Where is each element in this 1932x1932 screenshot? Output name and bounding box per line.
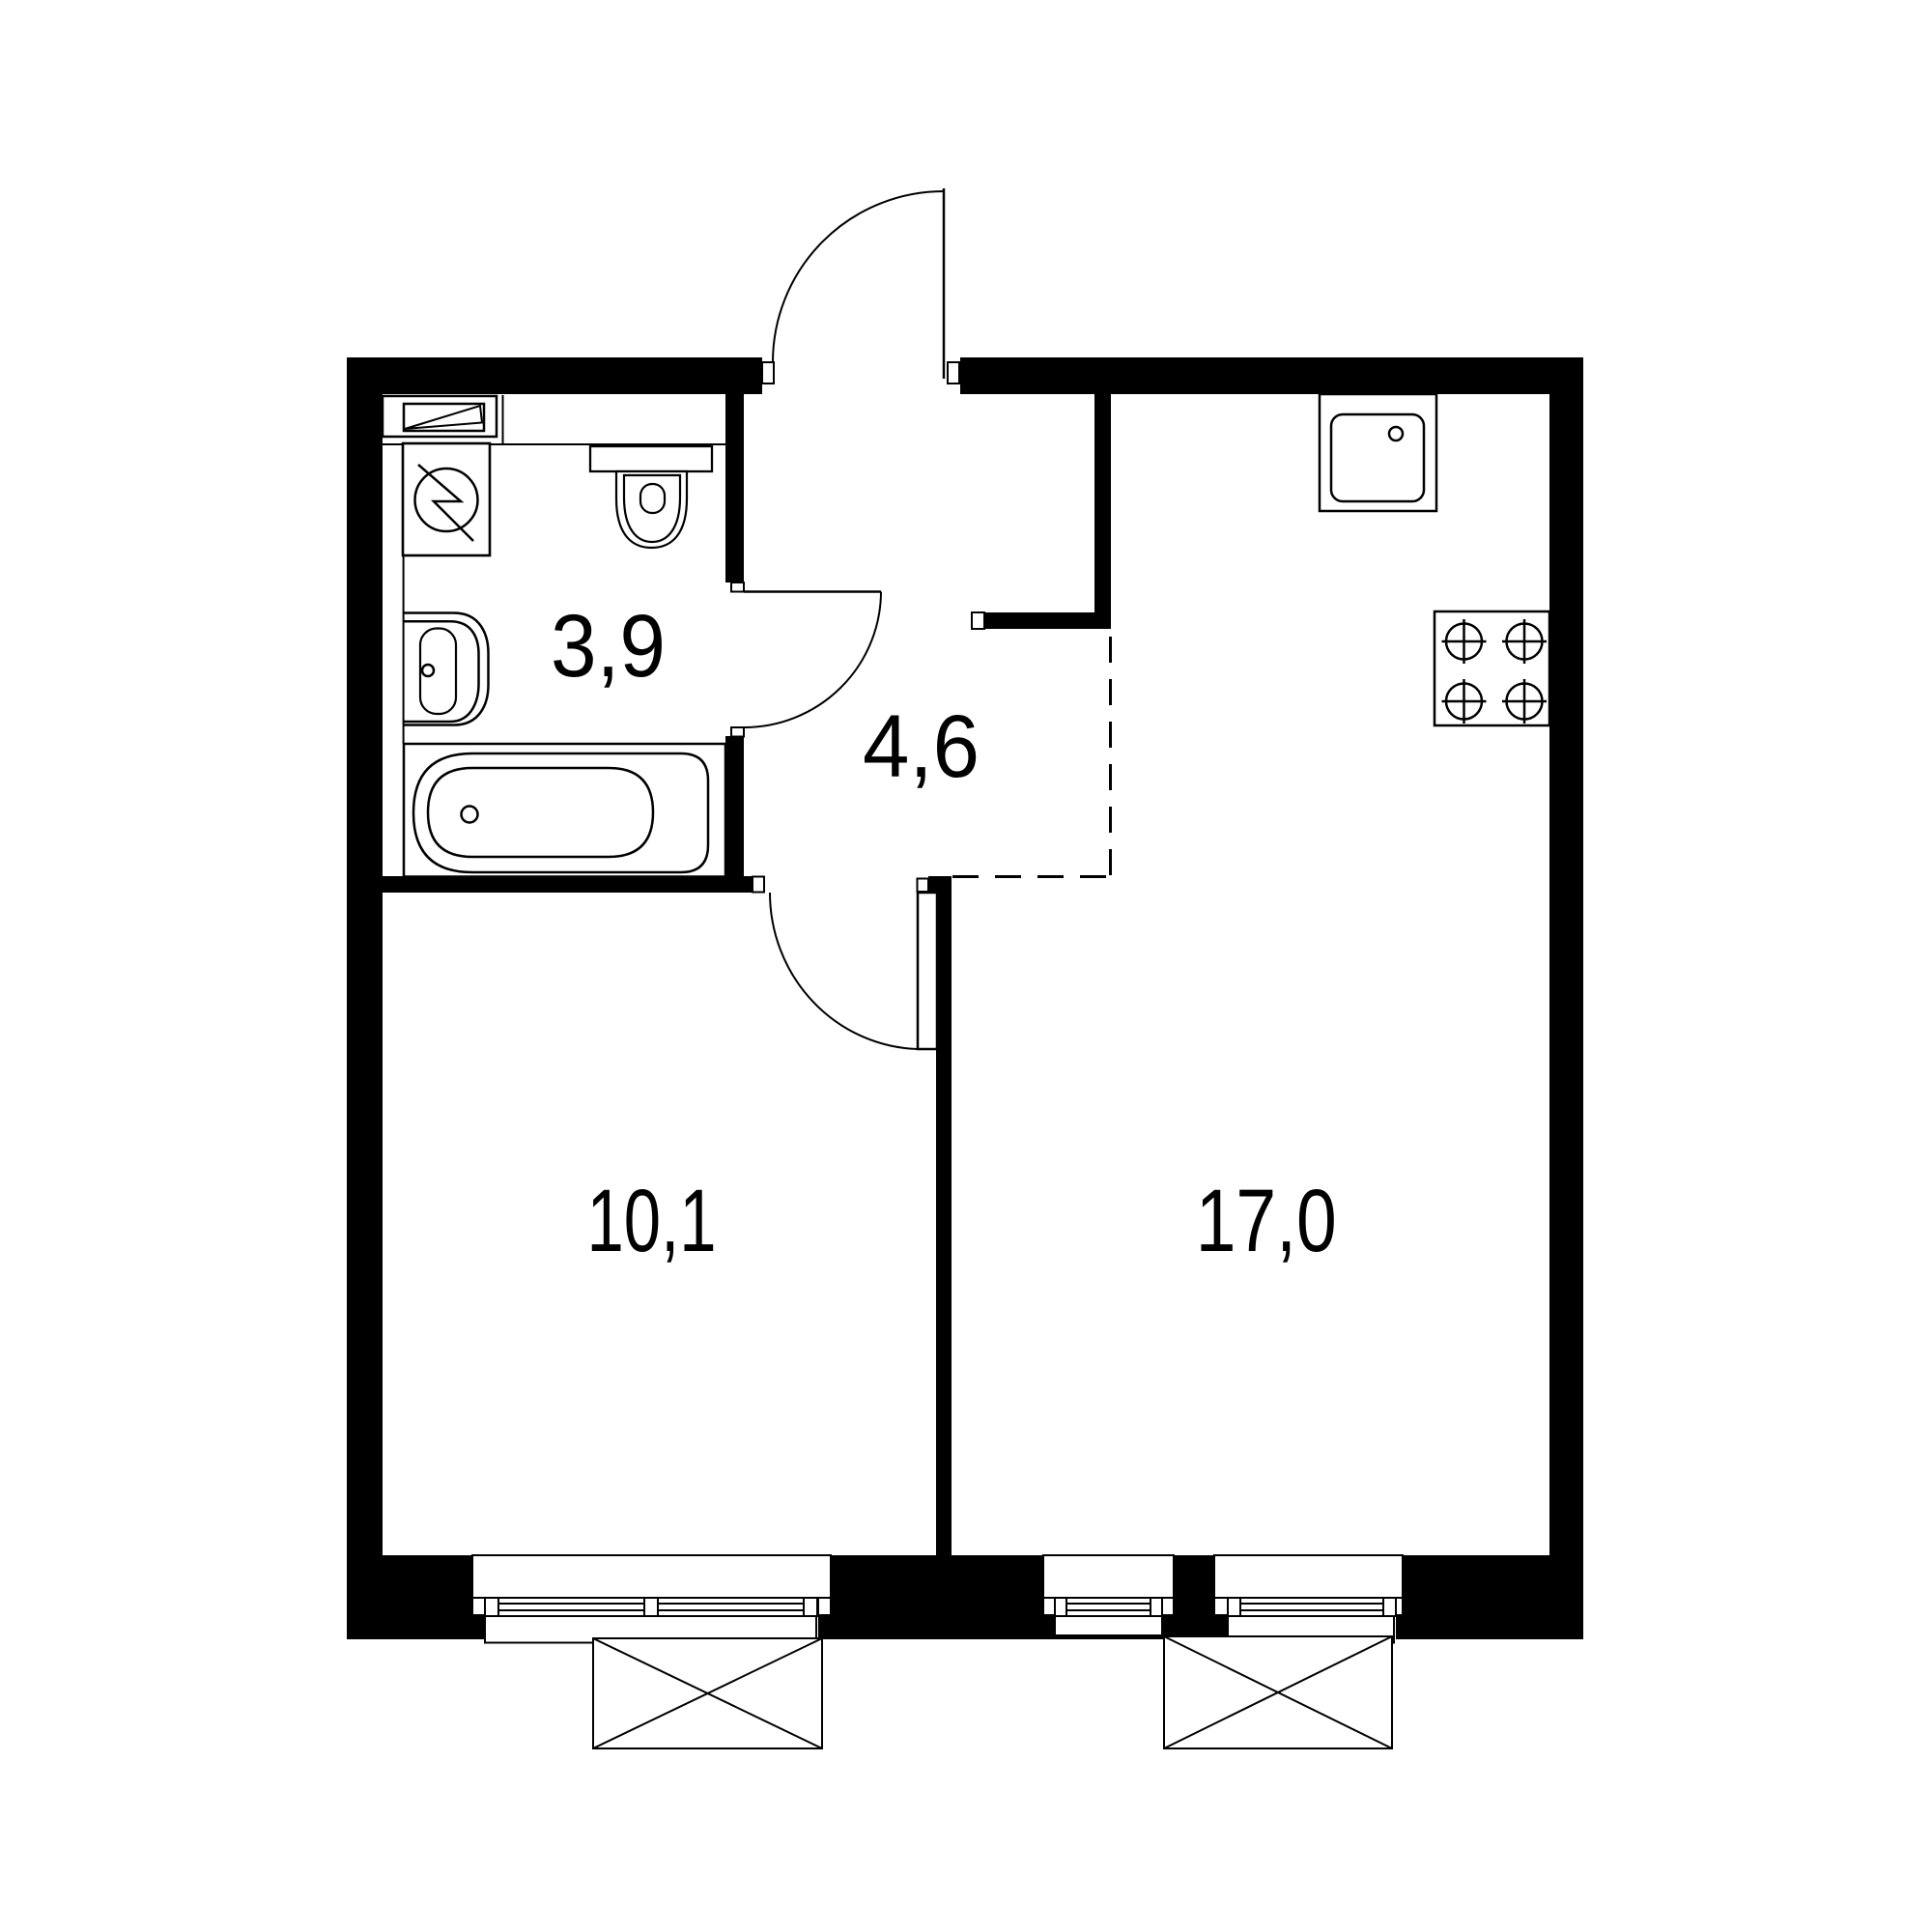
svg-text:4,6: 4,6 xyxy=(863,697,980,796)
svg-text:17,0: 17,0 xyxy=(1196,1172,1337,1270)
svg-text:10,1: 10,1 xyxy=(587,1172,717,1270)
svg-text:3,9: 3,9 xyxy=(551,597,666,696)
